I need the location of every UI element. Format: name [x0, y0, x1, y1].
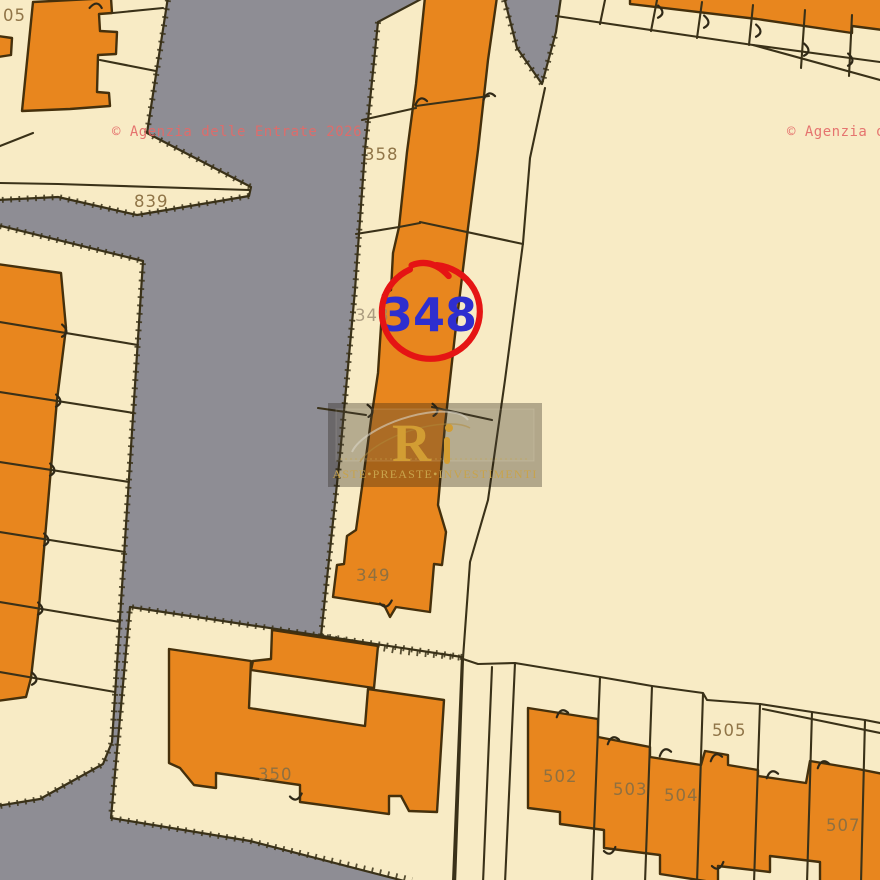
parcel-label-839: 839 [134, 192, 169, 211]
parcel-label-349: 349 [356, 566, 391, 585]
cadastral-map-canvas: 05 839 358 348 349 350 502 503 504 505 5… [0, 0, 880, 880]
parcel-label-502: 502 [543, 767, 578, 786]
parcel-label-505: 505 [712, 721, 747, 740]
highlight-parcel-number: 348 [381, 288, 477, 342]
brand-logo-watermark: R ASTE•PREASTE•INVESTIMENTI [328, 403, 542, 487]
parcel-label-350: 350 [258, 765, 293, 784]
cadastral-map: 05 839 358 348 349 350 502 503 504 505 5… [0, 0, 880, 880]
logo-inner-frame [336, 409, 534, 461]
parcel-label-358: 358 [364, 145, 399, 164]
logo-i-dot-icon [445, 424, 453, 432]
agency-watermark-left: © Agenzia delle Entrate 2026 [112, 124, 362, 140]
parcel-label-504: 504 [664, 786, 699, 805]
parcel-label-05: 05 [3, 6, 26, 25]
parcel-label-507: 507 [826, 816, 861, 835]
agency-watermark-right: © Agenzia d [787, 124, 880, 140]
logo-brand-text: ASTE•PREASTE•INVESTIMENTI [332, 467, 537, 481]
building-topleft-sliver [0, 36, 12, 57]
logo-monogram: R [392, 413, 432, 473]
parcel-label-503: 503 [613, 780, 648, 799]
